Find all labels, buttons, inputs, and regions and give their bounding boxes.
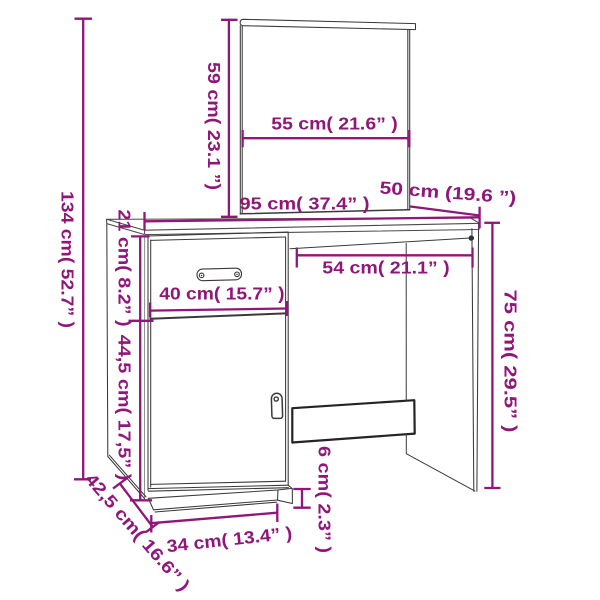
svg-text:6 cm( 2.3” ): 6 cm( 2.3” ) — [315, 446, 335, 553]
svg-text:54 cm( 21.1” ): 54 cm( 21.1” ) — [322, 258, 449, 278]
svg-text:34 cm( 13.4” ): 34 cm( 13.4” ) — [166, 523, 293, 556]
svg-text:75 cm( 29.5” ): 75 cm( 29.5” ) — [500, 290, 520, 433]
svg-text:59 cm( 23.1 ”): 59 cm( 23.1 ”) — [204, 62, 224, 190]
svg-text:21 cm( 8.2” ): 21 cm( 8.2” ) — [115, 210, 135, 327]
svg-text:40 cm( 15.7” ): 40 cm( 15.7” ) — [159, 283, 284, 303]
svg-text:50 cm (19.6 ”): 50 cm (19.6 ”) — [379, 177, 517, 207]
svg-text:134 cm( 52.7” ): 134 cm( 52.7” ) — [57, 191, 77, 328]
svg-text:95 cm( 37.4” ): 95 cm( 37.4” ) — [240, 193, 370, 213]
svg-text:44,5 cm( 17,5” ): 44,5 cm( 17,5” ) — [115, 335, 135, 481]
svg-text:55 cm( 21.6” ): 55 cm( 21.6” ) — [271, 114, 398, 134]
